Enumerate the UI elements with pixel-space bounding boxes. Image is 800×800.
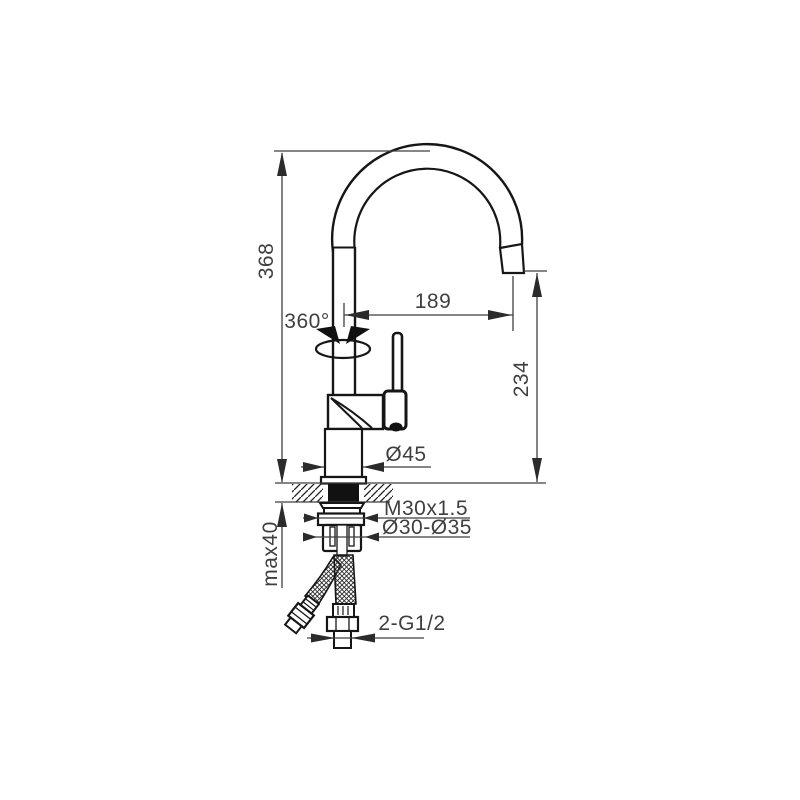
label-outlet-height: 234 — [510, 361, 533, 398]
label-swivel-angle: 360° — [284, 310, 329, 333]
label-spout-reach: 189 — [415, 290, 452, 313]
dim-max-deck-thickness: max40 — [259, 503, 287, 588]
lever-handle — [384, 333, 406, 432]
dim-outlet-height: 234 — [510, 271, 547, 482]
drawing-canvas: 368 360° 189 234 Ø45 M30x1.5 — [0, 0, 800, 800]
spout-arc — [332, 144, 524, 273]
fixing-nut — [318, 514, 364, 526]
dim-body-diameter: Ø45 — [301, 443, 431, 472]
g12-connector — [334, 631, 351, 648]
mixer-body — [328, 395, 383, 429]
supply-hoses — [283, 555, 358, 648]
hose-right — [334, 555, 356, 604]
hose-hex-nut — [327, 617, 358, 631]
label-body-diameter: Ø45 — [385, 443, 426, 466]
label-max-deck-thickness: max40 — [259, 521, 282, 587]
rubber-gasket — [328, 483, 359, 502]
mounting-hardware — [318, 503, 364, 556]
base-column — [321, 429, 366, 484]
label-hose-thread: 2-G1/2 — [378, 612, 445, 635]
mounting-stud — [337, 525, 347, 556]
countertop-hatch-left — [292, 484, 323, 502]
spout-outlet-tip — [500, 244, 524, 273]
dim-spout-reach: 189 — [344, 276, 513, 331]
faucet-technical-drawing: 368 360° 189 234 Ø45 M30x1.5 — [0, 0, 800, 800]
label-total-height: 368 — [255, 243, 278, 280]
label-mounting-hole: Ø30-Ø35 — [382, 516, 472, 539]
hose-fitting-center — [327, 604, 358, 648]
